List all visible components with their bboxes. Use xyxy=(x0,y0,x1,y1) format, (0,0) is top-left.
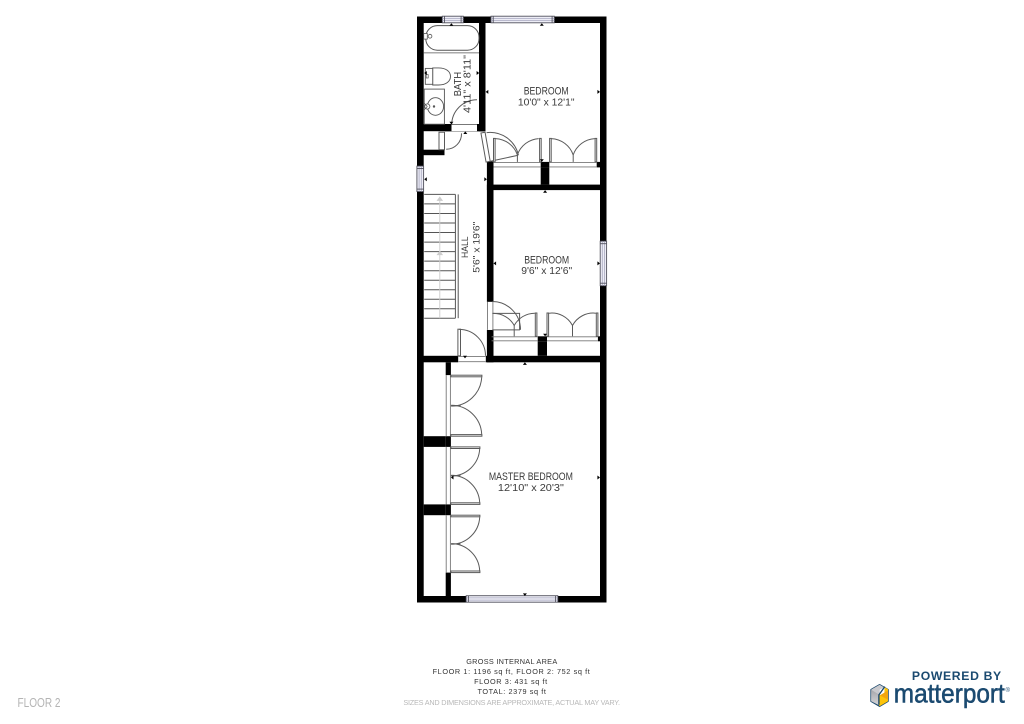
svg-text:GROSS INTERNAL AREA: GROSS INTERNAL AREA xyxy=(466,657,557,666)
svg-text:10'0" x 12'1": 10'0" x 12'1" xyxy=(518,97,575,108)
svg-text:FLOOR 1: 1196 sq ft, FLOOR 2:: FLOOR 1: 1196 sq ft, FLOOR 2: 752 sq ft xyxy=(433,667,590,676)
svg-text:12'10" x 20'3": 12'10" x 20'3" xyxy=(498,483,564,494)
svg-text:BEDROOM: BEDROOM xyxy=(524,254,569,266)
svg-text:FLOOR 2: FLOOR 2 xyxy=(18,696,61,710)
svg-text:BEDROOM: BEDROOM xyxy=(524,85,569,97)
svg-text:matterport: matterport xyxy=(894,679,1005,709)
svg-text:9'6" x 12'6": 9'6" x 12'6" xyxy=(521,266,572,277)
svg-text:4'11" x 8'11": 4'11" x 8'11" xyxy=(462,54,473,113)
svg-text:TOTAL: 2379 sq ft: TOTAL: 2379 sq ft xyxy=(477,687,546,696)
svg-text:MASTER BEDROOM: MASTER BEDROOM xyxy=(489,471,573,483)
svg-text:FLOOR 3: 431 sq ft: FLOOR 3: 431 sq ft xyxy=(474,677,547,686)
svg-text:HALL: HALL xyxy=(460,236,470,258)
svg-text:SIZES AND DIMENSIONS ARE APPRO: SIZES AND DIMENSIONS ARE APPROXIMATE, AC… xyxy=(403,698,620,707)
svg-text:®: ® xyxy=(1006,687,1011,694)
svg-text:5'6" x 19'6": 5'6" x 19'6" xyxy=(472,222,482,273)
